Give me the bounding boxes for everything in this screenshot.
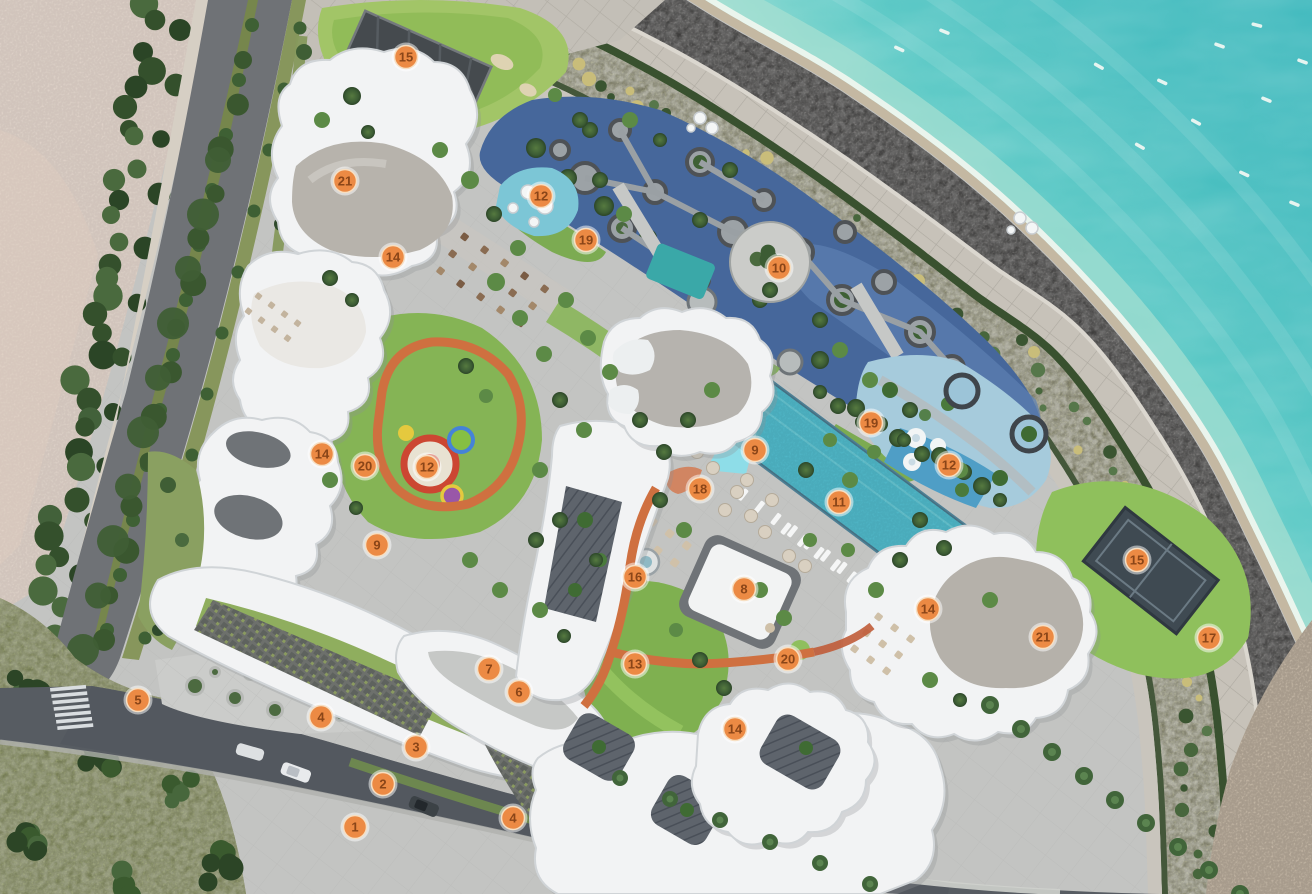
svg-text:14: 14 bbox=[315, 447, 330, 462]
svg-text:7: 7 bbox=[485, 662, 492, 677]
svg-text:1: 1 bbox=[351, 820, 358, 835]
svg-text:20: 20 bbox=[781, 652, 795, 667]
svg-text:21: 21 bbox=[338, 174, 352, 189]
svg-text:8: 8 bbox=[740, 582, 747, 597]
svg-text:14: 14 bbox=[386, 250, 401, 265]
svg-text:14: 14 bbox=[728, 722, 743, 737]
svg-text:12: 12 bbox=[420, 460, 434, 475]
svg-text:18: 18 bbox=[693, 482, 707, 497]
svg-text:13: 13 bbox=[628, 657, 642, 672]
svg-text:2: 2 bbox=[379, 777, 386, 792]
svg-text:20: 20 bbox=[358, 459, 372, 474]
svg-text:21: 21 bbox=[1036, 630, 1050, 645]
svg-text:3: 3 bbox=[412, 740, 419, 755]
svg-text:15: 15 bbox=[399, 50, 413, 65]
svg-text:19: 19 bbox=[864, 416, 878, 431]
svg-text:17: 17 bbox=[1202, 631, 1216, 646]
svg-text:4: 4 bbox=[509, 811, 517, 826]
svg-text:19: 19 bbox=[579, 233, 593, 248]
svg-text:9: 9 bbox=[751, 443, 758, 458]
svg-text:16: 16 bbox=[628, 570, 642, 585]
svg-text:4: 4 bbox=[317, 710, 325, 725]
svg-text:12: 12 bbox=[942, 458, 956, 473]
svg-text:10: 10 bbox=[772, 261, 786, 276]
svg-text:11: 11 bbox=[832, 495, 846, 510]
svg-text:5: 5 bbox=[134, 693, 141, 708]
svg-text:15: 15 bbox=[1130, 553, 1144, 568]
svg-text:9: 9 bbox=[373, 538, 380, 553]
svg-text:6: 6 bbox=[515, 685, 522, 700]
svg-text:14: 14 bbox=[921, 602, 936, 617]
svg-text:12: 12 bbox=[534, 189, 548, 204]
